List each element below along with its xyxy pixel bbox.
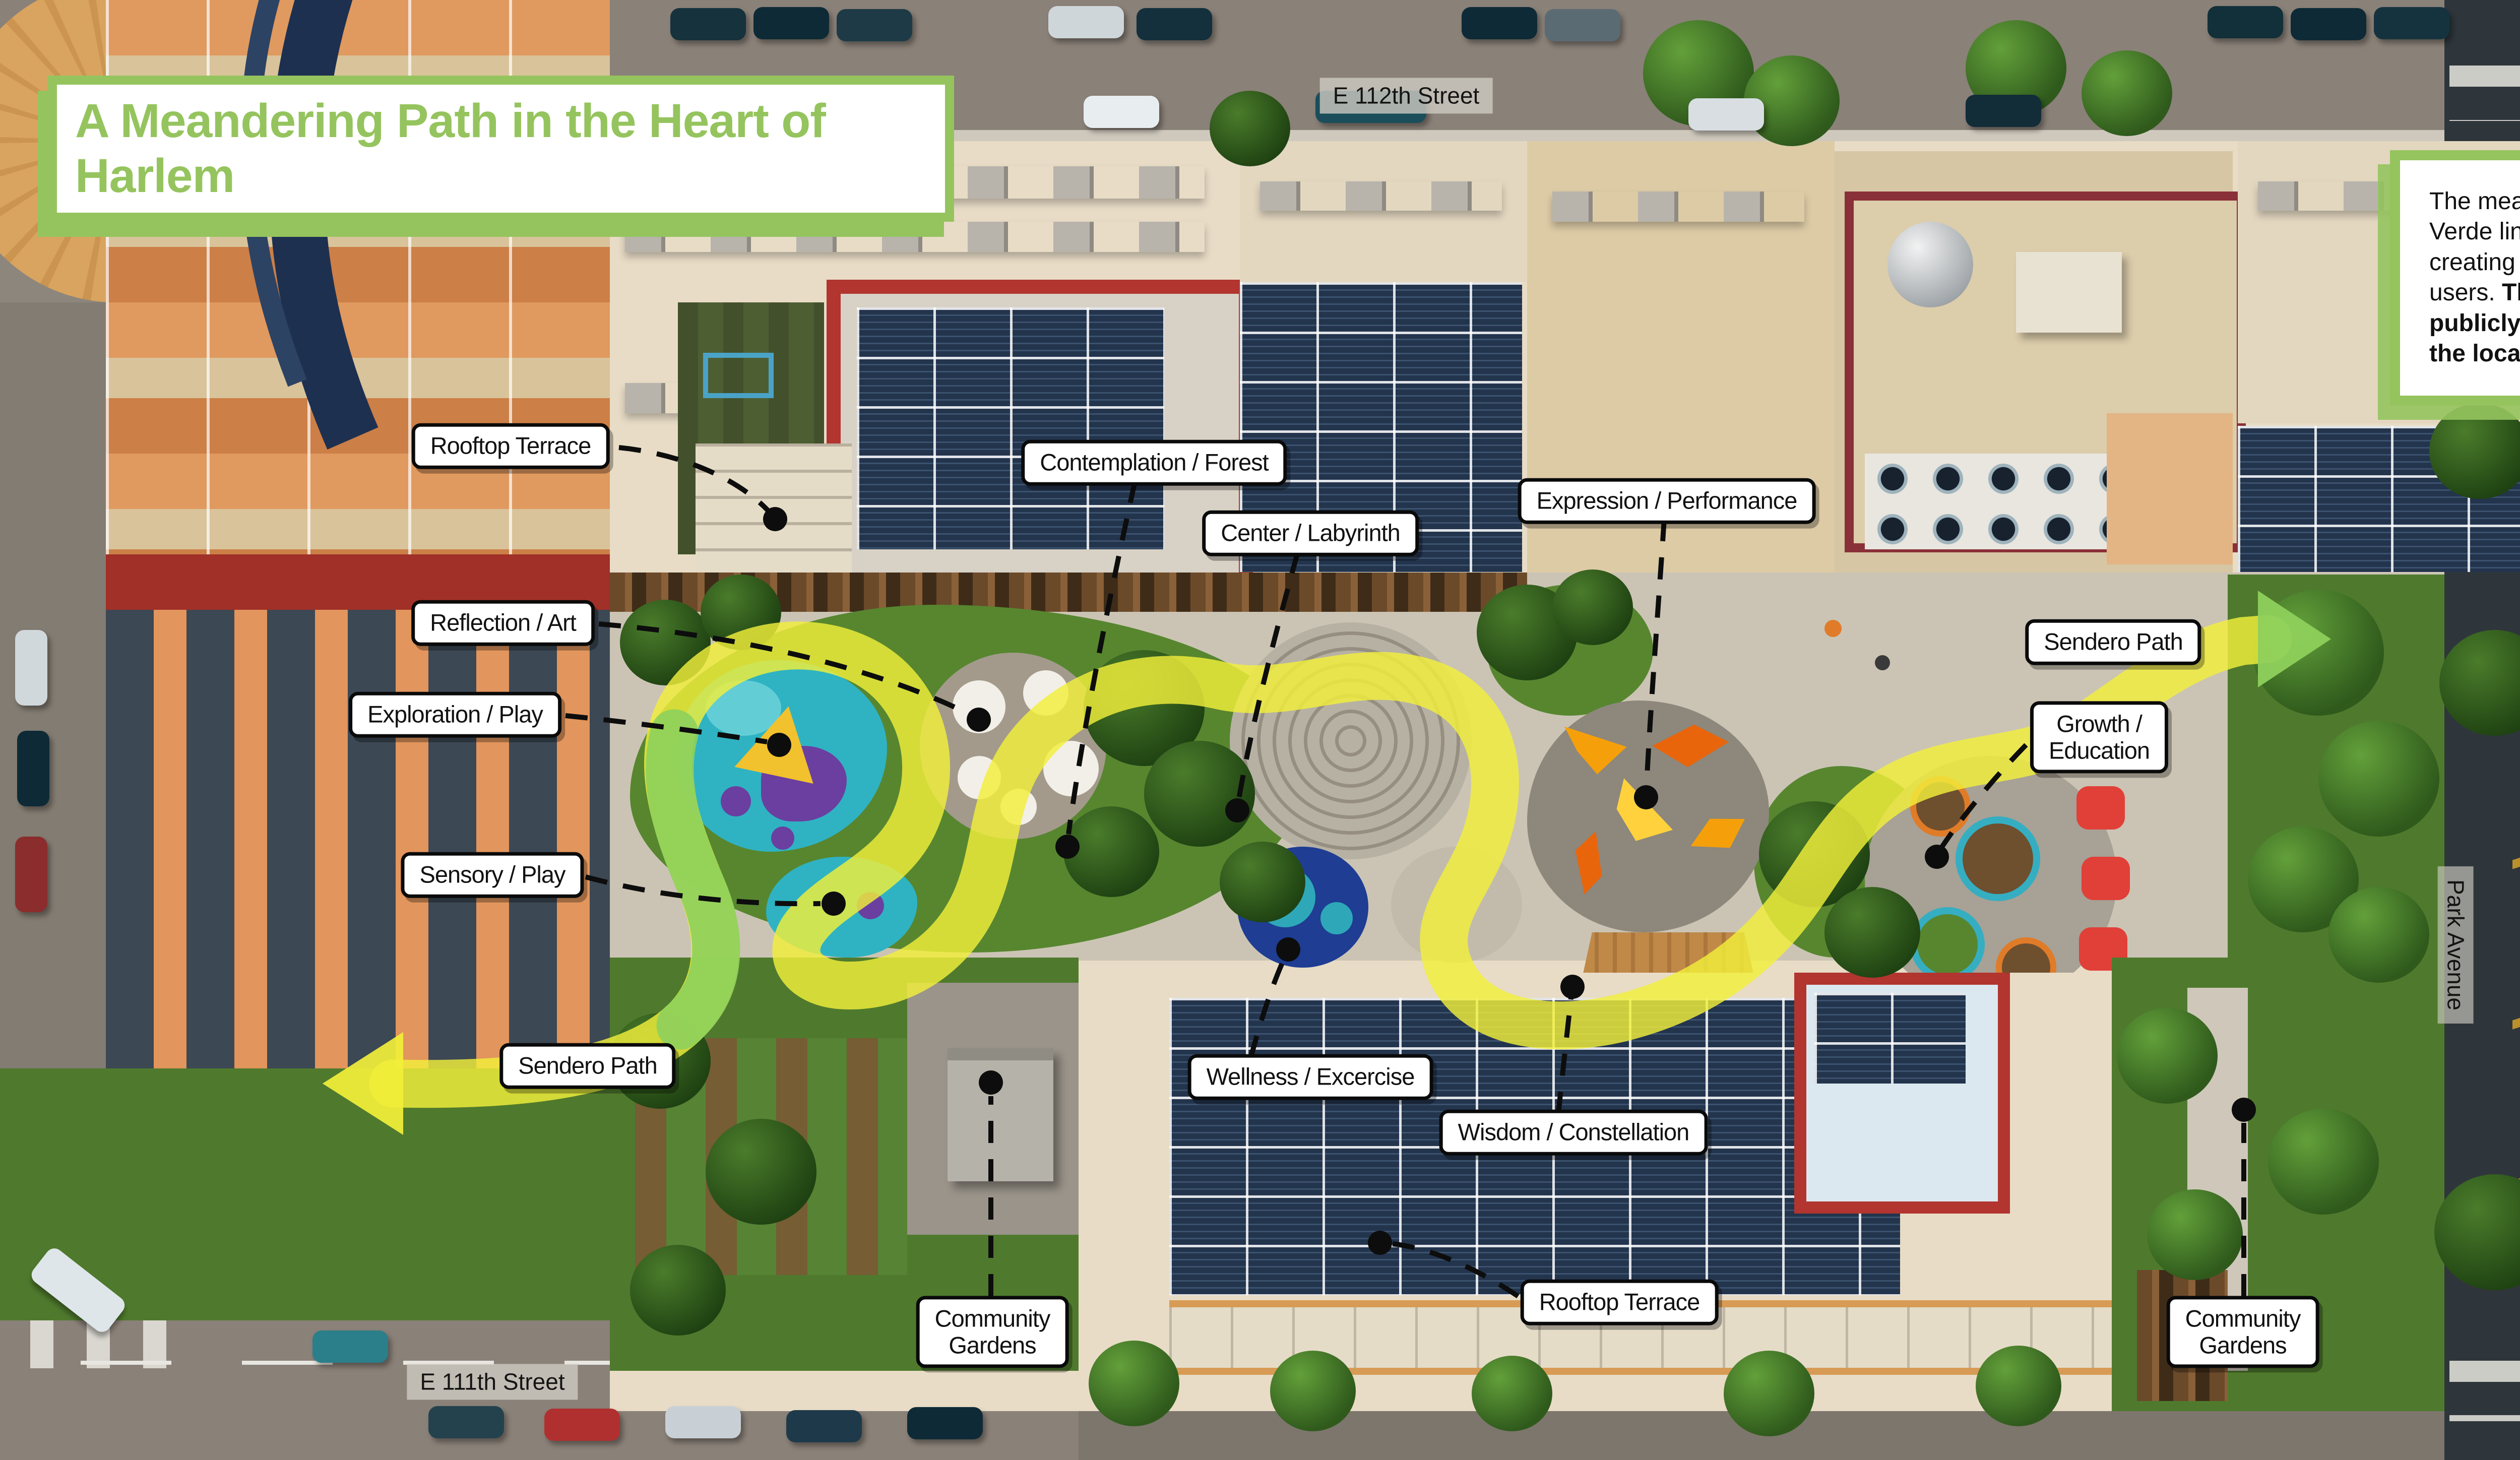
annotated-aerial-map: A Meandering Path in the Heart of Harlem… [0, 0, 2520, 1460]
label-reflection-art: Reflection / Art [411, 600, 595, 646]
leader-dot [1634, 785, 1658, 809]
leader-dot [767, 733, 791, 757]
street-label-e112: E 112th Street [1320, 78, 1493, 113]
leader-expression [1647, 519, 1664, 785]
leader-dot [2232, 1098, 2256, 1122]
leader-dot [979, 1070, 1003, 1095]
label-contemplation-forest: Contemplation / Forest [1021, 440, 1287, 486]
leader-dot [763, 507, 787, 531]
label-sensory-play: Sensory / Play [401, 852, 584, 898]
label-sendero-path-right: Sendero Path [2025, 619, 2201, 665]
label-center-labyrinth: Center / Labyrinth [1202, 511, 1419, 556]
leader-wellness [1251, 959, 1284, 1057]
leader-rooftop-terrace-top [619, 448, 772, 515]
sendero-arrow-left [323, 1032, 403, 1135]
street-label-park-avenue: Park Avenue [2437, 866, 2473, 1024]
label-sendero-path-left: Sendero Path [499, 1043, 675, 1089]
label-wellness-excercise: Wellness / Excercise [1188, 1054, 1433, 1100]
leader-dot [967, 708, 991, 732]
label-growth-education: Growth / Education [2030, 701, 2168, 773]
label-community-gardens-left: Community Gardens [916, 1296, 1069, 1368]
leader-dot [1925, 845, 1949, 869]
leader-dot [822, 892, 846, 916]
leader-dot [1560, 975, 1585, 999]
label-wisdom-constellation: Wisdom / Constellation [1439, 1110, 1708, 1156]
street-label-e111: E 111th Street [407, 1364, 578, 1400]
label-community-gardens-right: Community Gardens [2167, 1296, 2319, 1368]
leader-dot [1368, 1231, 1392, 1255]
leader-dot [1225, 798, 1249, 822]
label-exploration-play: Exploration / Play [349, 692, 561, 738]
label-rooftop-terrace-bottom: Rooftop Terrace [1521, 1280, 1719, 1325]
leader-contemplation [1068, 481, 1135, 834]
leader-rooftop-terrace-bottom [1392, 1244, 1518, 1296]
sendero-path-green-segment [670, 733, 716, 1026]
label-rooftop-terrace-top: Rooftop Terrace [412, 423, 610, 469]
leader-dot [1055, 835, 1080, 859]
sendero-arrow-right [2258, 591, 2331, 687]
page-title: A Meandering Path in the Heart of Harlem [48, 76, 954, 222]
leader-dot [1276, 937, 1300, 962]
label-expression-performance: Expression / Performance [1518, 478, 1816, 524]
description-box: The meandering pathway of Sendero Verde … [2390, 150, 2520, 406]
